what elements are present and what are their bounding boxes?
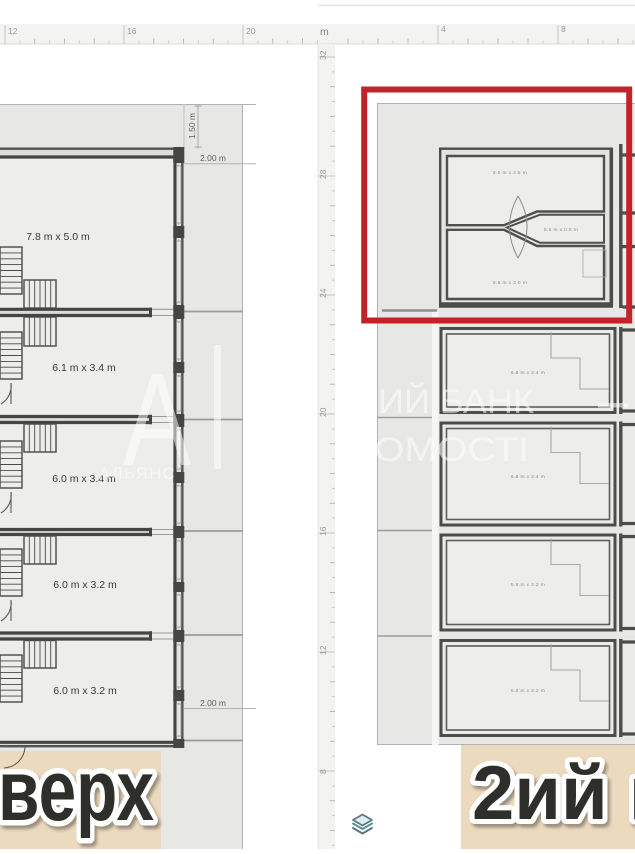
svg-text:ОМОСТІ: ОМОСТІ	[374, 431, 529, 469]
svg-text:8: 8	[318, 769, 328, 774]
svg-text:5.8 m x 3.2 m: 5.8 m x 3.2 m	[511, 582, 545, 588]
svg-text:12: 12	[318, 645, 328, 655]
svg-text:5.5 m x 2.5 m: 5.5 m x 2.5 m	[493, 170, 527, 176]
svg-text:6.0 m x 3.2 m: 6.0 m x 3.2 m	[53, 685, 117, 697]
svg-text:2ий п: 2ий п	[472, 751, 635, 836]
svg-text:20: 20	[246, 26, 256, 36]
svg-text:7.8 m x 5.0 m: 7.8 m x 5.0 m	[26, 231, 90, 243]
svg-text:6.1 m x 3.4 m: 6.1 m x 3.4 m	[52, 362, 116, 374]
svg-text:2.00 m: 2.00 m	[200, 153, 226, 163]
svg-text:5.5 m x 0.8 m: 5.5 m x 0.8 m	[544, 227, 578, 233]
svg-text:24: 24	[318, 288, 328, 298]
svg-text:32: 32	[318, 50, 328, 60]
svg-text:АЛЬЯНС: АЛЬЯНС	[99, 465, 176, 483]
svg-text:1.50 m: 1.50 m	[187, 113, 197, 139]
svg-text:28: 28	[318, 169, 328, 179]
svg-text:8: 8	[561, 24, 566, 34]
svg-text:16: 16	[318, 526, 328, 536]
svg-text:6.0 m x 3.2 m: 6.0 m x 3.2 m	[53, 579, 117, 591]
svg-text:ИЙ БАНК: ИЙ БАНК	[378, 383, 534, 421]
svg-text:2.00 m: 2.00 m	[200, 698, 226, 708]
svg-text:5.8 m x 3.4 m: 5.8 m x 3.4 m	[511, 474, 545, 480]
svg-text:4: 4	[441, 24, 446, 34]
svg-text:5.5 m x 3.0 m: 5.5 m x 3.0 m	[493, 280, 527, 286]
svg-text:m: m	[320, 26, 329, 38]
svg-text:12: 12	[8, 26, 18, 36]
svg-text:5.8 m x 3.4 m: 5.8 m x 3.4 m	[511, 370, 545, 376]
svg-text:5.8 m x 3.2 m: 5.8 m x 3.2 m	[511, 688, 545, 694]
svg-text:20: 20	[318, 407, 328, 417]
svg-text:16: 16	[127, 26, 137, 36]
svg-text:верх: верх	[0, 743, 154, 839]
